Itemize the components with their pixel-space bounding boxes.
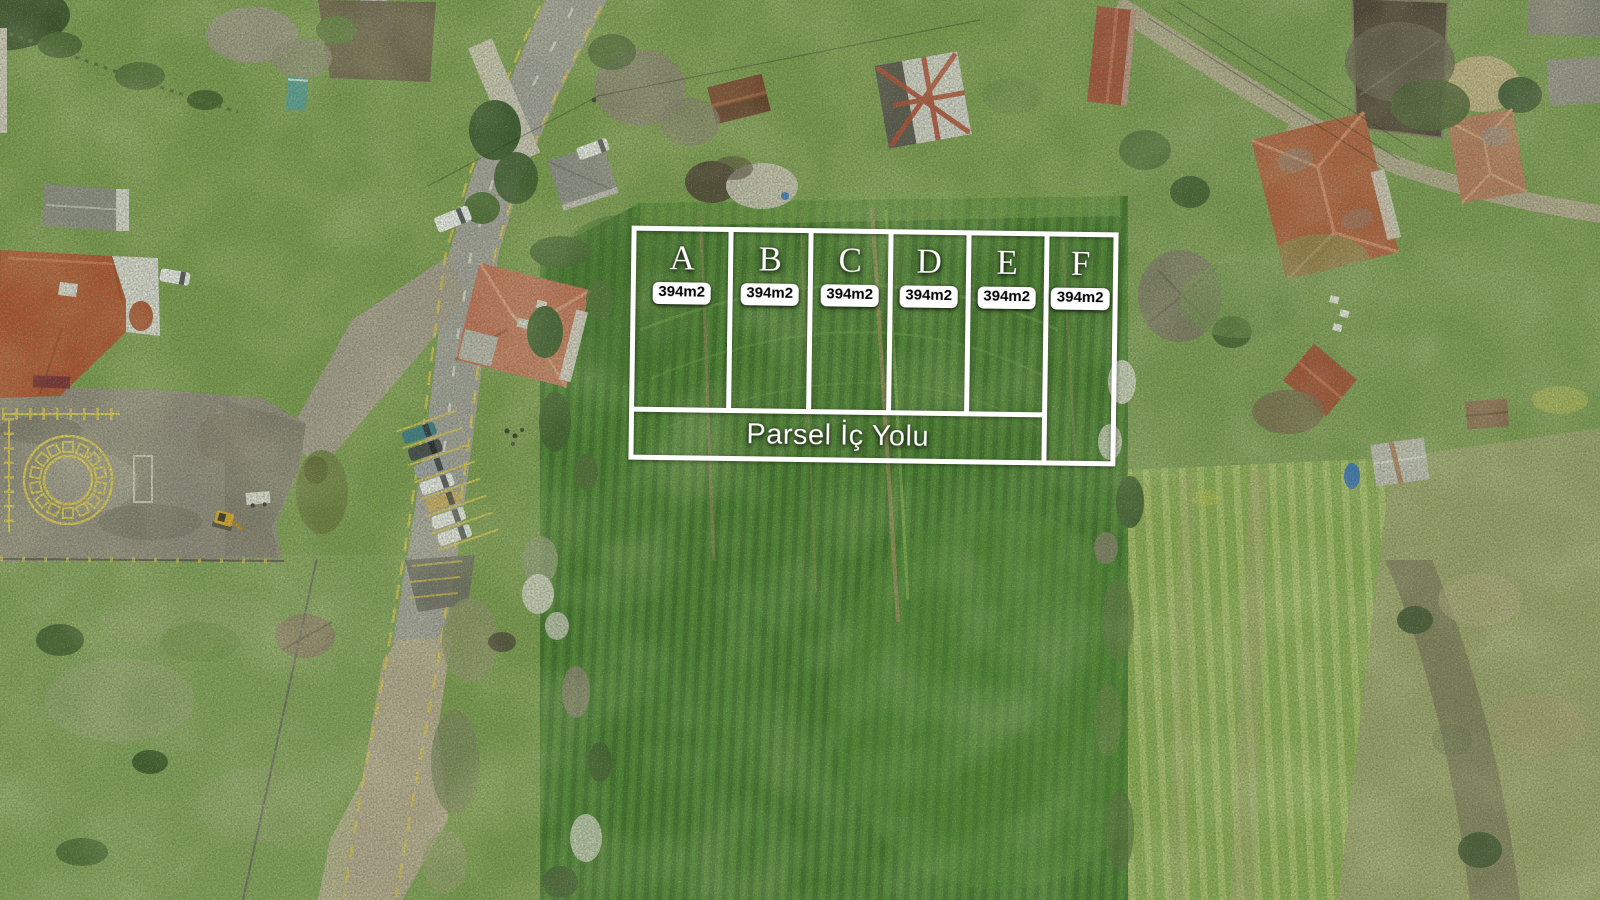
parcel-cell-a: A 394m2: [636, 231, 729, 305]
road-label: Parsel İç Yolu: [746, 418, 929, 454]
parcel-cell-c: C 394m2: [812, 233, 889, 307]
parcel-label: A: [669, 240, 695, 275]
parcel-internal-road: Parsel İç Yolu: [633, 411, 1042, 460]
parcel-cell-e: E 394m2: [970, 235, 1045, 309]
parcel-cell-f: F 394m2: [1048, 236, 1114, 310]
parcel-cell-d: D 394m2: [892, 234, 967, 308]
parcel-area-badge: 394m2: [740, 283, 799, 306]
parcel-label: C: [838, 243, 862, 278]
parcel-label: E: [996, 245, 1018, 280]
parcel-area-badge: 394m2: [899, 285, 958, 308]
parcel-area-badge: 394m2: [1051, 287, 1110, 310]
parcel-plan-overlay: A 394m2 B 394m2 C 394m2 D 394m2 E 394m2 …: [628, 226, 1118, 467]
parcel-area-badge: 394m2: [652, 282, 711, 305]
parcel-label: D: [916, 244, 942, 279]
aerial-photo: A 394m2 B 394m2 C 394m2 D 394m2 E 394m2 …: [0, 0, 1600, 900]
parcel-label: B: [758, 241, 782, 276]
parcel-cell-b: B 394m2: [732, 232, 809, 306]
parcel-area-badge: 394m2: [977, 286, 1036, 309]
parcel-label: F: [1071, 246, 1091, 281]
parcel-area-badge: 394m2: [820, 284, 879, 307]
